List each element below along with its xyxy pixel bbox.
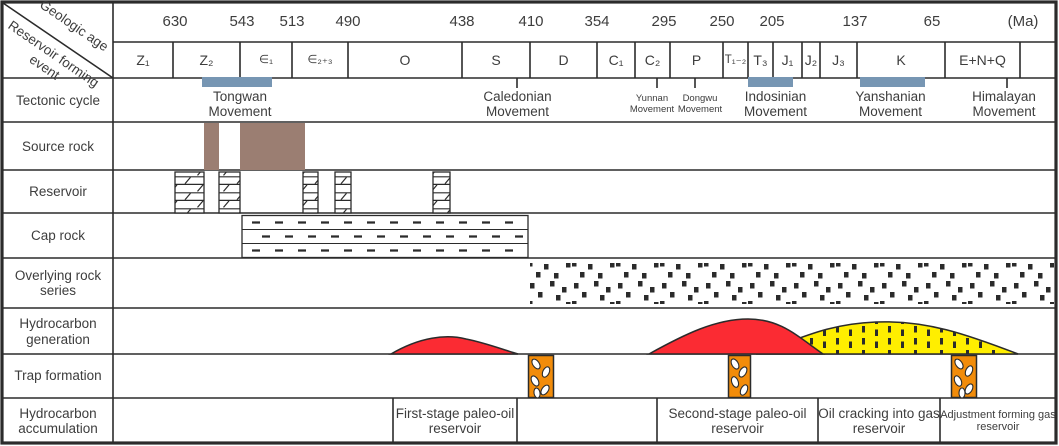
- age-tick-490: 490: [335, 13, 360, 30]
- period-d: D: [530, 44, 597, 77]
- accumulation-second-stage: Second-stage paleo-oil reservoir: [657, 399, 818, 443]
- reservoir-block-4: [335, 172, 351, 213]
- trap-bar-1: [529, 356, 554, 399]
- period-z1: Z₁: [113, 44, 173, 77]
- age-tick-205: 205: [759, 13, 784, 30]
- period-j2: J₂: [802, 44, 820, 77]
- period-t12: T₁₋₂: [723, 44, 748, 77]
- period-k: K: [857, 44, 945, 77]
- accumulation-first-stage: First-stage paleo-oil reservoir: [393, 399, 517, 443]
- source-rock-bar-1: [204, 123, 219, 170]
- period-j3: J₃: [820, 44, 857, 77]
- age-tick-513: 513: [279, 13, 304, 30]
- age-tick-250: 250: [709, 13, 734, 30]
- movement-yanshanian: Yanshanian Movement: [828, 86, 953, 122]
- movement-himalayan: Himalayan Movement: [948, 86, 1059, 122]
- reservoir-block-2: [219, 172, 240, 213]
- period-s: S: [462, 44, 530, 77]
- age-tick-65: 65: [924, 13, 941, 30]
- movement-tongwan: Tongwan Movement: [185, 86, 295, 122]
- period-t3: T₃: [748, 44, 773, 77]
- row-label-overlying-rock-series: Overlying rock series: [4, 259, 112, 307]
- row-label-cap-rock: Cap rock: [4, 214, 112, 257]
- period-o: O: [348, 44, 462, 77]
- reservoir-block-3: [303, 172, 318, 213]
- source-rock-bar-2: [240, 123, 305, 170]
- reservoir-forming-event-chart: Geologic age Reservoir forming event 630…: [0, 0, 1059, 446]
- cap-rock-block: [242, 216, 528, 258]
- period-c2: C₂: [635, 44, 670, 77]
- period-p: P: [670, 44, 723, 77]
- age-tick-137: 137: [842, 13, 867, 30]
- overlying-rock-dots: [530, 263, 1054, 304]
- first-oil-generation-hump: [391, 337, 518, 354]
- period-enq: E+N+Q: [945, 44, 1020, 77]
- row-label-tectonic-cycle: Tectonic cycle: [4, 80, 112, 122]
- age-tick-543: 543: [229, 13, 254, 30]
- row-label-trap-formation: Trap formation: [4, 355, 112, 397]
- trap-bar-3: [952, 356, 977, 399]
- second-oil-generation-hump: [649, 319, 823, 354]
- source-rock-bars: [204, 123, 305, 170]
- reservoir-block-5: [433, 172, 450, 213]
- row-label-hydrocarbon-generation: Hydrocarbon generation: [4, 309, 112, 354]
- accumulation-oil-cracking: Oil cracking into gas reservoir: [818, 399, 940, 443]
- movement-indosinian: Indosinian Movement: [718, 86, 833, 122]
- age-tick-630: 630: [162, 13, 187, 30]
- trap-formation-bars: [529, 356, 977, 399]
- age-unit-ma: (Ma): [1008, 13, 1039, 30]
- period-e1: ∈₁: [240, 44, 292, 77]
- period-c1: C₁: [597, 44, 635, 77]
- accumulation-adjustment: Adjustment forming gas reservoir: [940, 399, 1056, 443]
- age-tick-354: 354: [584, 13, 609, 30]
- age-tick-410: 410: [518, 13, 543, 30]
- period-j1: J₁: [773, 44, 802, 77]
- period-e23: ∈₂₊₃: [292, 44, 348, 77]
- reservoir-block-1: [175, 172, 204, 213]
- row-label-source-rock: Source rock: [4, 124, 112, 169]
- age-tick-438: 438: [449, 13, 474, 30]
- row-label-hydrocarbon-accumulation: Hydrocarbon accumulation: [4, 399, 112, 443]
- reservoir-blocks: [175, 172, 450, 213]
- movement-caledonian: Caledonian Movement: [460, 86, 575, 122]
- hydrocarbon-generation-humps: [391, 316, 1018, 354]
- row-label-reservoir: Reservoir: [4, 171, 112, 213]
- age-tick-295: 295: [651, 13, 676, 30]
- trap-bar-2: [729, 356, 751, 398]
- period-z2: Z₂: [173, 44, 240, 77]
